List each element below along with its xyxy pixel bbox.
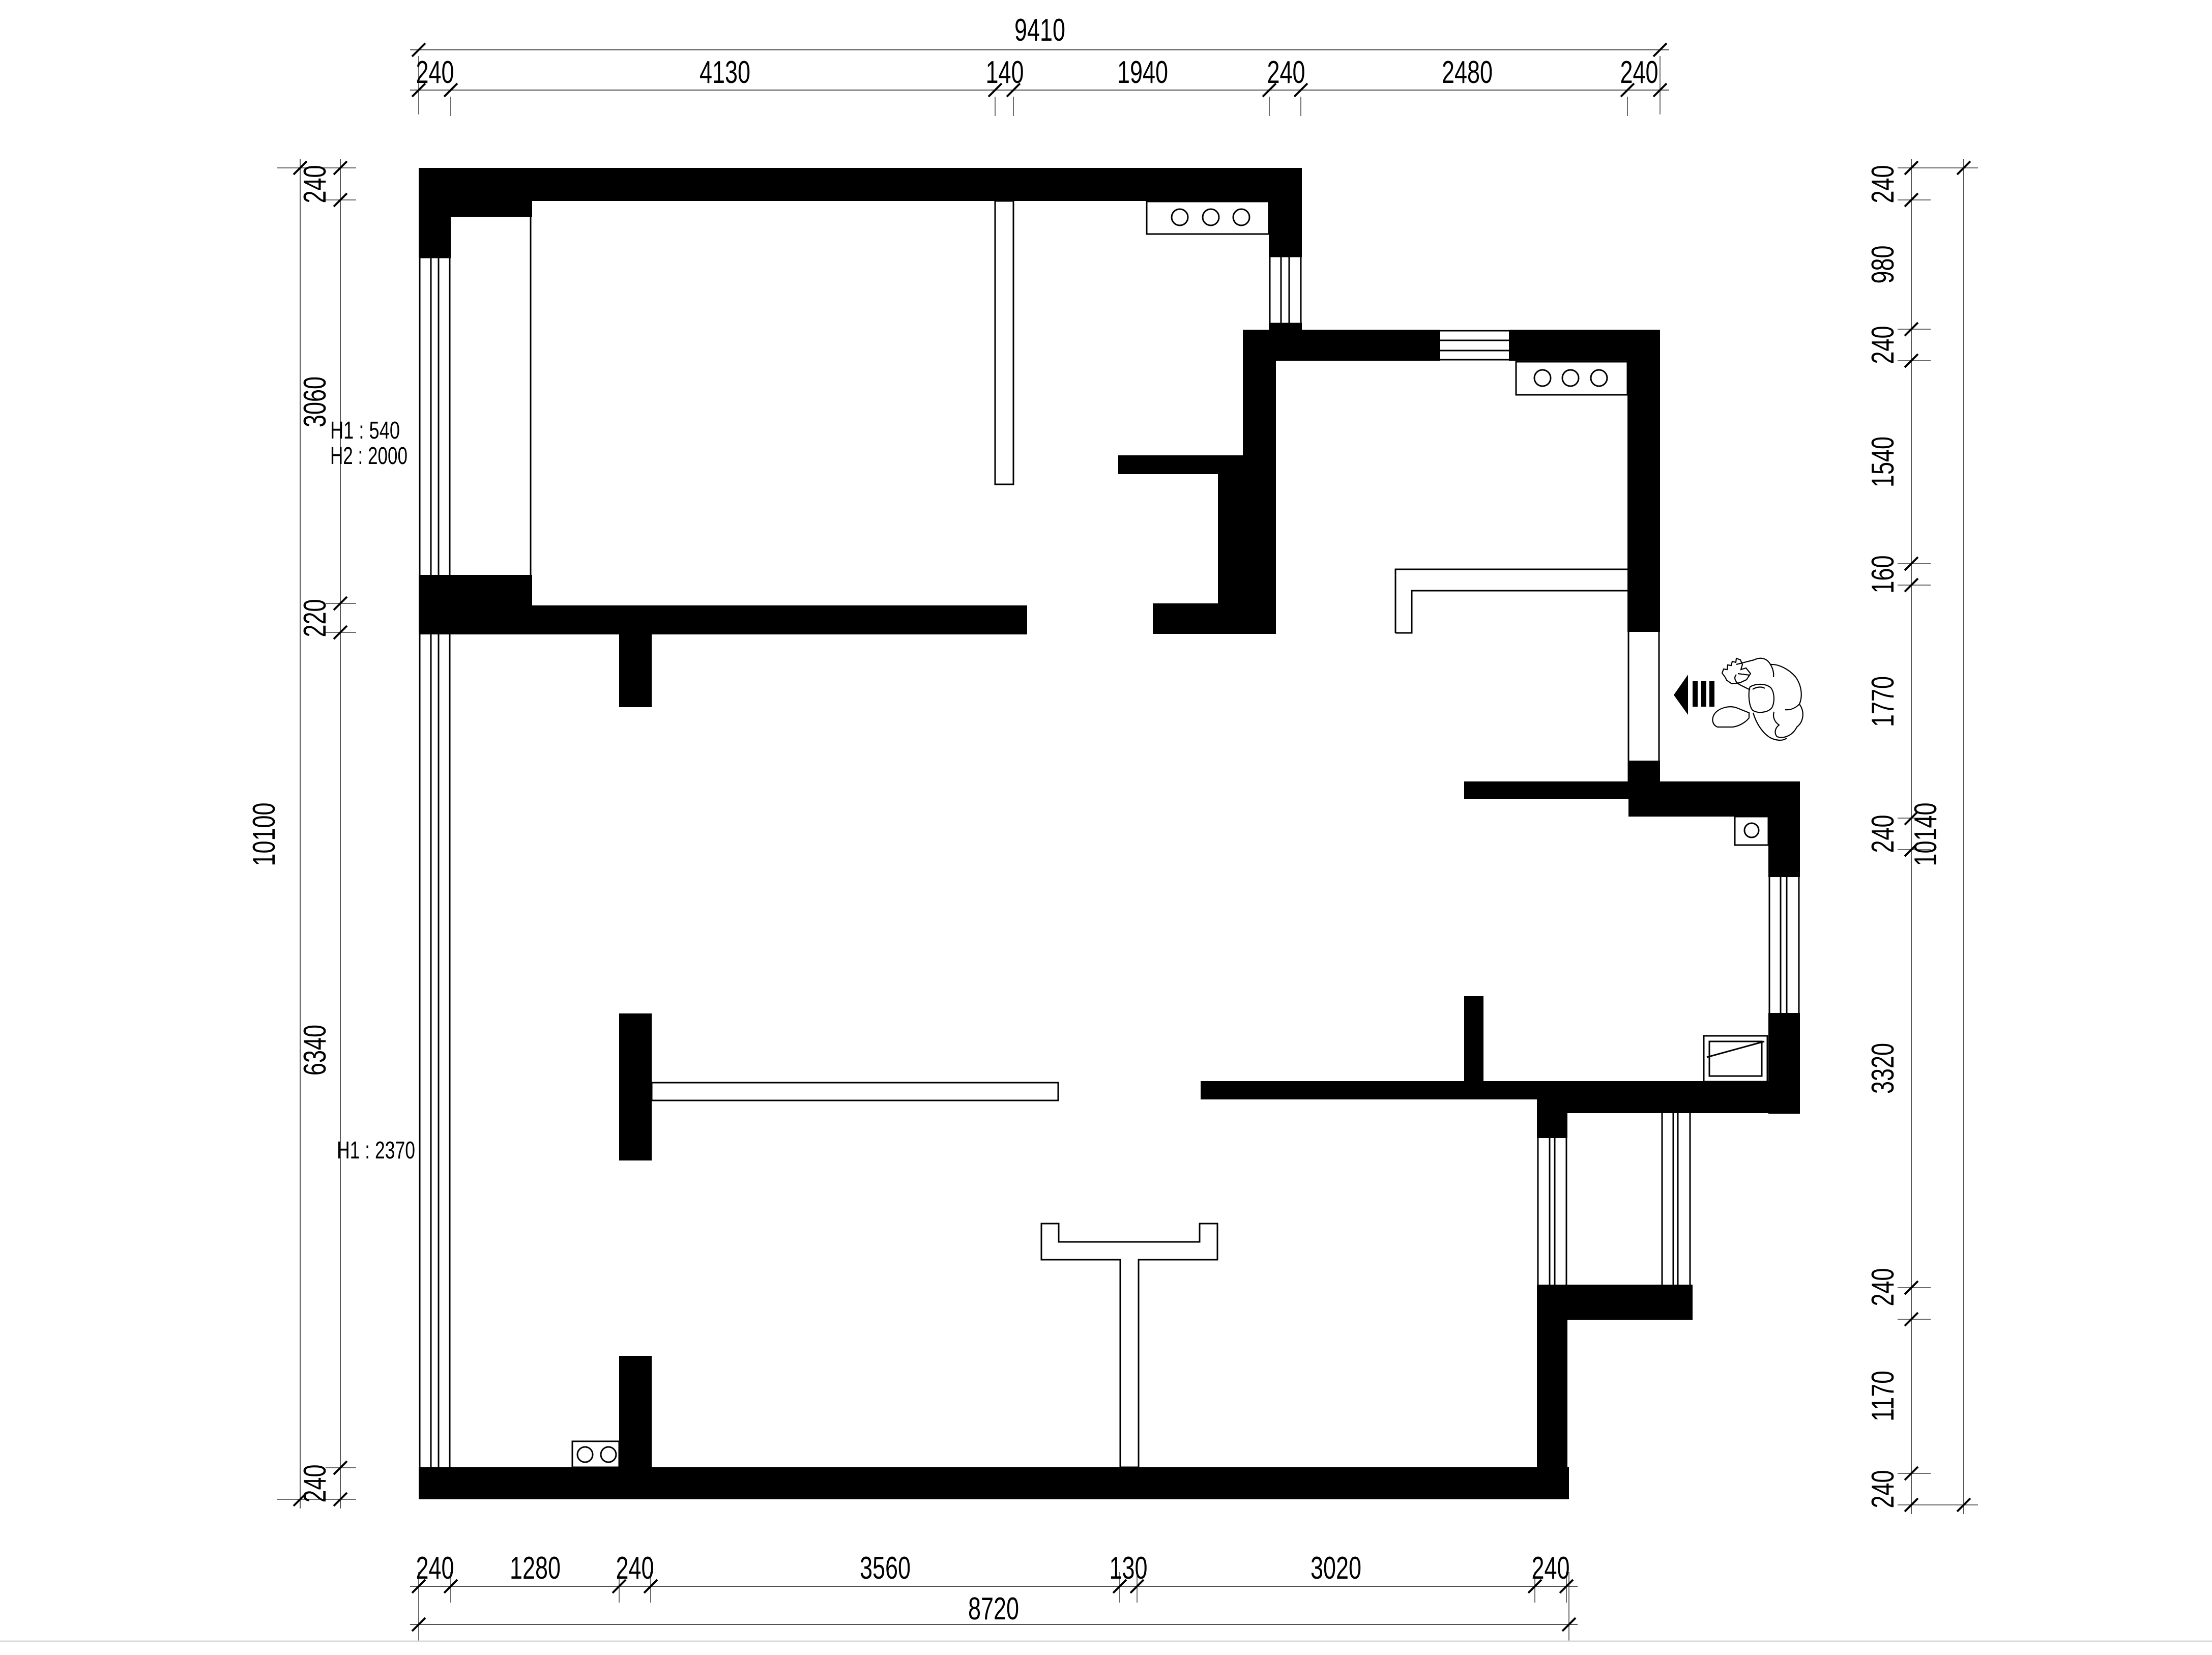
svg-text:3020: 3020 [1311, 1551, 1361, 1586]
svg-text:130: 130 [1110, 1551, 1148, 1586]
svg-text:240: 240 [298, 165, 333, 204]
svg-text:240: 240 [298, 1465, 333, 1503]
svg-text:140: 140 [986, 55, 1024, 90]
svg-text:240: 240 [1866, 815, 1901, 853]
svg-text:H1 : 540: H1 : 540 [330, 417, 400, 444]
svg-text:240: 240 [416, 1551, 454, 1586]
svg-text:1170: 1170 [1866, 1371, 1901, 1421]
svg-text:2480: 2480 [1442, 55, 1493, 90]
svg-text:3060: 3060 [298, 376, 333, 427]
svg-text:6340: 6340 [298, 1025, 333, 1076]
svg-text:H1 : 2370: H1 : 2370 [337, 1137, 415, 1164]
svg-text:160: 160 [1866, 556, 1901, 594]
svg-text:980: 980 [1866, 246, 1901, 284]
svg-text:240: 240 [1866, 165, 1901, 204]
svg-text:8720: 8720 [968, 1591, 1019, 1627]
svg-text:10140: 10140 [1908, 803, 1943, 866]
svg-text:240: 240 [1866, 1268, 1901, 1306]
svg-text:240: 240 [416, 55, 454, 90]
svg-text:1770: 1770 [1866, 676, 1901, 727]
svg-text:3320: 3320 [1866, 1043, 1901, 1094]
svg-text:10100: 10100 [247, 803, 282, 866]
svg-text:1940: 1940 [1117, 55, 1168, 90]
svg-text:220: 220 [298, 599, 333, 637]
svg-text:4130: 4130 [700, 55, 750, 90]
svg-text:1280: 1280 [510, 1551, 561, 1586]
svg-text:3560: 3560 [860, 1551, 911, 1586]
svg-text:240: 240 [1620, 55, 1658, 90]
svg-text:9410: 9410 [1014, 13, 1065, 48]
svg-text:240: 240 [1866, 1470, 1901, 1508]
svg-text:240: 240 [616, 1551, 654, 1586]
svg-text:H2 : 2000: H2 : 2000 [330, 443, 408, 470]
svg-text:240: 240 [1267, 55, 1305, 90]
svg-text:1540: 1540 [1866, 437, 1901, 487]
svg-text:240: 240 [1866, 326, 1901, 364]
svg-text:240: 240 [1532, 1551, 1570, 1586]
